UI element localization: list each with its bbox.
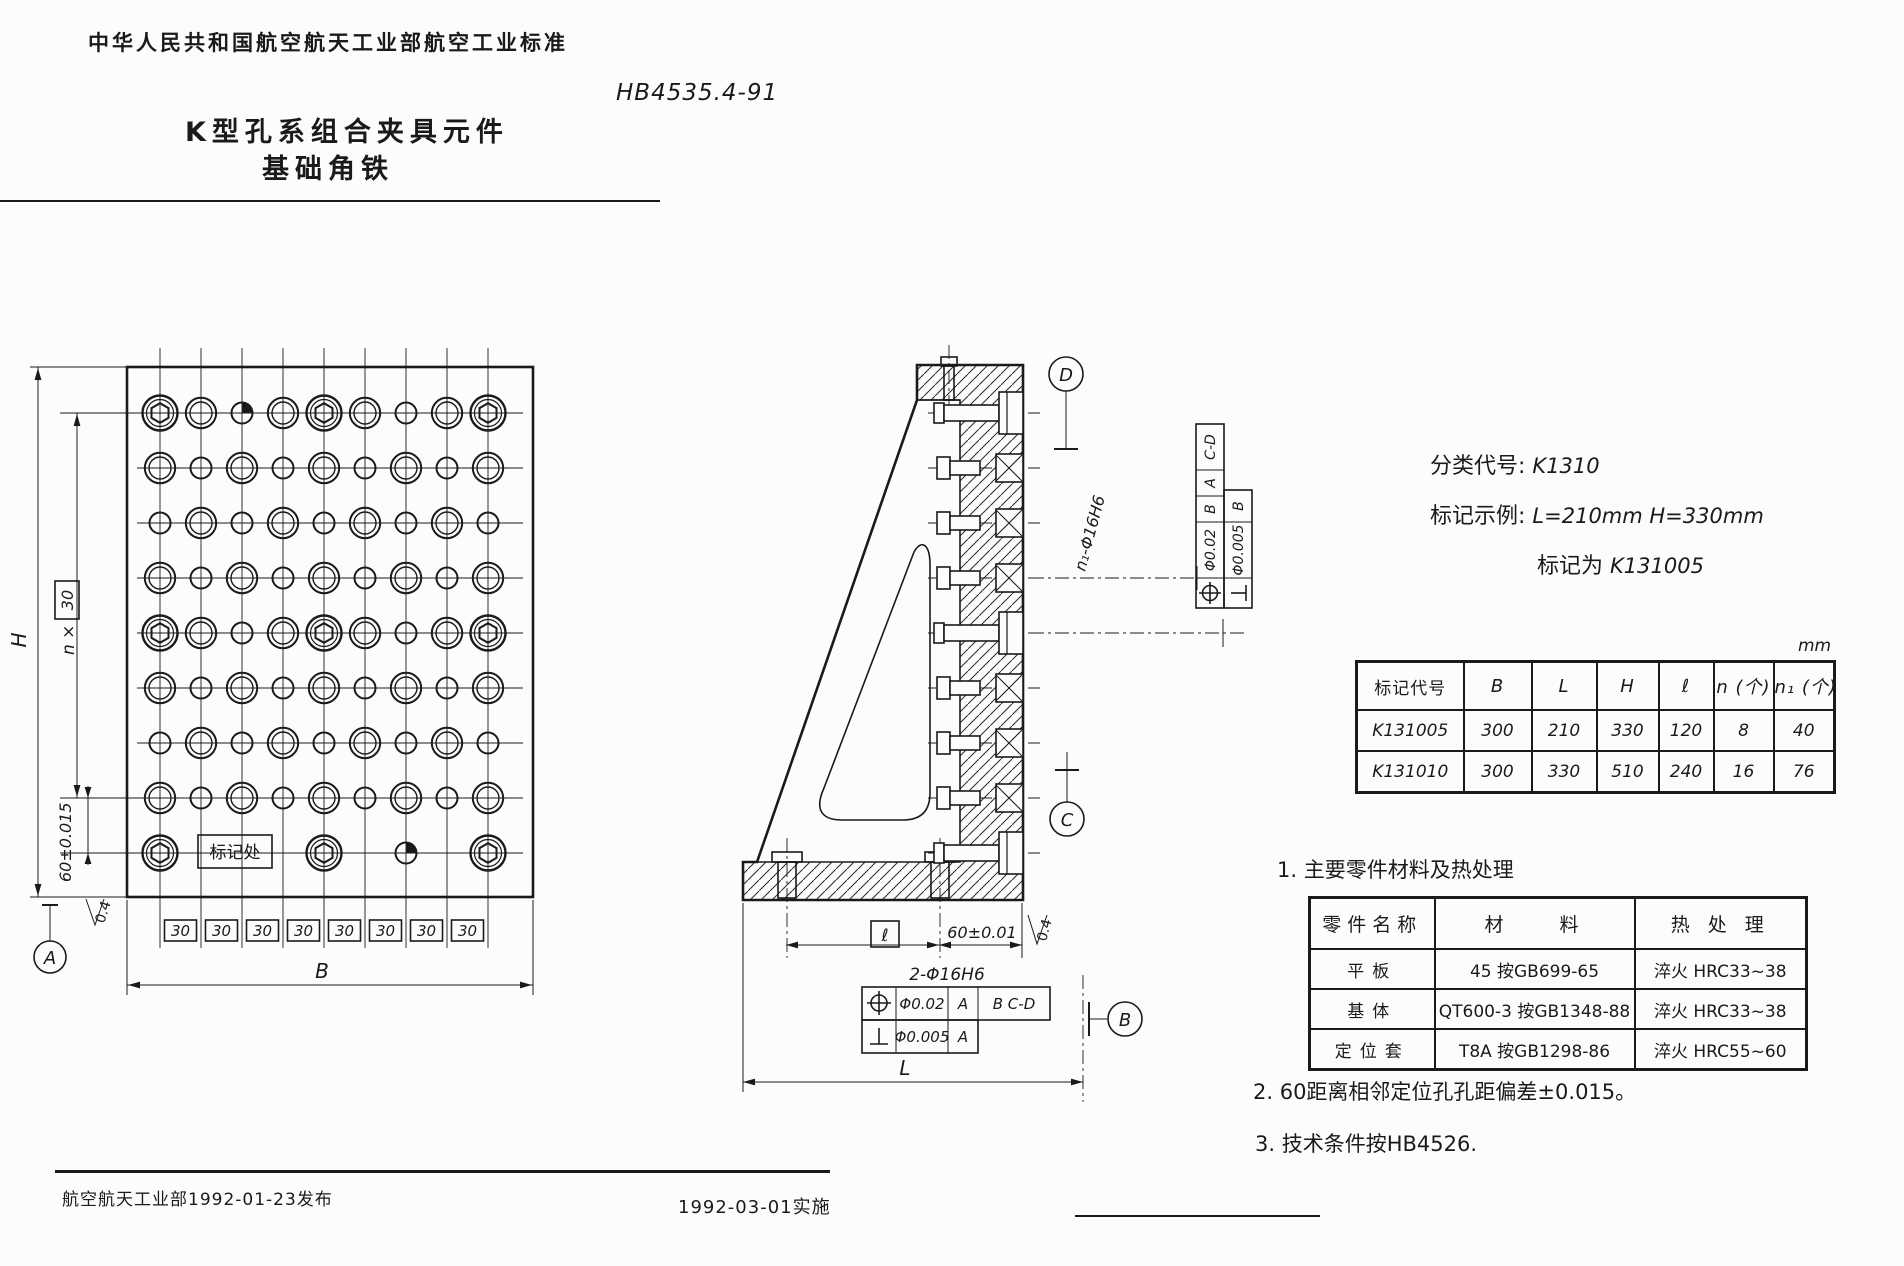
frame-cell: A xyxy=(1203,478,1219,489)
sv-datum-C-label: C xyxy=(1061,810,1074,831)
plate-outline xyxy=(127,367,533,897)
web-cutout xyxy=(820,545,930,820)
cell: 240 xyxy=(1659,751,1714,793)
bolt-head-left xyxy=(934,843,944,863)
fv-label-B: B xyxy=(315,959,329,983)
sv-roughness: 0.4 xyxy=(1028,915,1056,944)
top-bolt xyxy=(941,345,957,412)
bolt-head-left xyxy=(934,403,944,423)
sv-label-2holes: 2-Φ16H6 xyxy=(909,965,985,985)
spacing-value: 30 xyxy=(417,922,436,940)
col-header: 零件名称 xyxy=(1310,898,1435,950)
bolt-head-left xyxy=(934,623,944,643)
cell: QT600-3 按GB1348-88 xyxy=(1435,989,1635,1029)
side-view: D C n₁-Φ16H6 xyxy=(743,345,1252,1102)
sv-datum-D: D xyxy=(1049,357,1083,449)
sv-datum-D-label: D xyxy=(1059,365,1073,386)
cell: 8 xyxy=(1714,710,1774,751)
standard-org-line: 中华人民共和国航空航天工业部航空工业标准 xyxy=(88,27,568,57)
sv-datum-B-label: B xyxy=(1119,1010,1131,1031)
title-line2: 基础角铁 xyxy=(262,147,394,186)
material-table: 零件名称 材 料 热 处 理 平板 45 按GB699-65 淬火 HRC33~… xyxy=(1308,896,1808,1071)
col-header: B xyxy=(1464,662,1532,711)
dim-table-header-row: 标记代号 B L H ℓ n (个) n₁ (个) xyxy=(1357,662,1835,711)
cell: 76 xyxy=(1774,751,1835,793)
screw-head xyxy=(937,677,950,699)
fv-mark-label: 标记处 xyxy=(210,843,261,863)
sv-label-L: L xyxy=(899,1056,910,1080)
frame-cell: Φ0.005 xyxy=(895,1028,950,1046)
spacing-value: 30 xyxy=(335,922,354,940)
cell: 平板 xyxy=(1310,949,1435,989)
footer-issued: 航空航天工业部1992-01-23发布 xyxy=(62,1185,333,1210)
sv-roughness-value: 0.4 xyxy=(1034,917,1055,943)
frame-cell: C-D xyxy=(1203,434,1219,460)
title-line1: K型孔系组合夹具元件 xyxy=(185,110,509,149)
hex-bolt-head xyxy=(999,392,1023,434)
dimension-table: 标记代号 B L H ℓ n (个) n₁ (个) K131005 300 21… xyxy=(1355,660,1836,794)
material-table-row: 基体 QT600-3 按GB1348-88 淬火 HRC33~38 xyxy=(1310,989,1807,1029)
fv-roughness: 0.4 xyxy=(86,899,115,925)
fv-label-30: 30 xyxy=(58,590,77,610)
sv-label-60: 60±0.01 xyxy=(947,923,1016,942)
standard-number: HB4535.4-91 xyxy=(616,80,778,106)
screw-shaft xyxy=(950,736,980,750)
cell: 40 xyxy=(1774,710,1835,751)
col-header: H xyxy=(1597,662,1659,711)
fv-datum-A-label: A xyxy=(43,948,56,969)
screw-head xyxy=(937,567,950,589)
screw-shaft xyxy=(950,791,980,805)
bottom-right-rule xyxy=(1075,1215,1320,1217)
cell: 基体 xyxy=(1310,989,1435,1029)
cell: 330 xyxy=(1532,751,1597,793)
classification-code-value: K1310 xyxy=(1532,454,1599,478)
fv-datum-A: A xyxy=(34,905,66,973)
col-header: 热 处 理 xyxy=(1635,898,1807,950)
dim-table-row: K131010 300 330 510 240 16 76 xyxy=(1357,751,1835,793)
cell: 淬火 HRC55~60 xyxy=(1635,1029,1807,1070)
screw-head xyxy=(937,512,950,534)
screw-shaft xyxy=(950,461,980,475)
marking-label: 标记为 xyxy=(1537,554,1603,579)
col-header: ℓ xyxy=(1659,662,1714,711)
dim-table-row: K131005 300 210 330 120 8 40 xyxy=(1357,710,1835,751)
marking-example-line: 标记示例: L=210mm H=330mm xyxy=(1430,498,1764,530)
cell: 210 xyxy=(1532,710,1597,751)
cell: 330 xyxy=(1597,710,1659,751)
note-3: 3. 技术条件按HB4526. xyxy=(1255,1128,1477,1158)
frame-cell: Φ0.02 xyxy=(899,995,944,1013)
frame-cell: Φ0.005 xyxy=(1231,524,1247,575)
dim-table-unit: mm xyxy=(1798,636,1831,656)
bolt-shaft xyxy=(944,405,999,421)
standard-drawing-sheet: H n × 30 60±0.015 xyxy=(0,0,1904,1266)
spacing-value: 30 xyxy=(376,922,395,940)
classification-code-label: 分类代号: xyxy=(1430,454,1525,479)
classification-code-line: 分类代号: K1310 xyxy=(1430,448,1600,480)
sv-datum-C: C xyxy=(1050,752,1084,836)
bolt-shaft xyxy=(944,845,999,861)
hex-bolt-head xyxy=(999,832,1023,874)
screw-head xyxy=(937,787,950,809)
frame-cell: B C-D xyxy=(993,995,1036,1013)
screw-head xyxy=(937,732,950,754)
cell: 定位套 xyxy=(1310,1029,1435,1070)
spacing-value: 30 xyxy=(253,922,272,940)
footer-implemented: 1992-03-01实施 xyxy=(678,1193,831,1219)
marking-example-value: L=210mm H=330mm xyxy=(1532,504,1763,528)
cell: 45 按GB699-65 xyxy=(1435,949,1635,989)
fv-label-n: n × xyxy=(59,625,79,655)
sv-frame-bottom: 2-Φ16H6 Φ0.02 A B C-D Φ0.005 xyxy=(862,965,1050,1053)
position-symbol xyxy=(1199,582,1221,604)
col-header: n₁ (个) xyxy=(1774,662,1835,711)
frame-cell: A xyxy=(957,1028,968,1046)
spacing-value: 30 xyxy=(458,922,477,940)
screw-head xyxy=(937,457,950,479)
sv-dim-ell-60: ℓ 60±0.01 xyxy=(786,903,1022,958)
frame-cell: Φ0.02 xyxy=(1203,529,1219,571)
title-rule xyxy=(0,200,660,202)
cell: T8A 按GB1298-86 xyxy=(1435,1029,1635,1070)
fv-dim-n30: n × 30 xyxy=(55,413,80,798)
fv-dim-60: 60±0.015 xyxy=(56,786,91,882)
note-2: 2. 60距离相邻定位孔孔距偏差±0.015。 xyxy=(1253,1076,1636,1106)
cell: 淬火 HRC33~38 xyxy=(1635,989,1807,1029)
frame-cell: B xyxy=(1231,501,1247,511)
sv-datum-B: B xyxy=(1089,1002,1142,1036)
screw-shaft xyxy=(950,681,980,695)
cell: 510 xyxy=(1597,751,1659,793)
note-1: 1. 主要零件材料及热处理 xyxy=(1277,854,1514,884)
screw-shaft xyxy=(950,571,980,585)
material-table-header-row: 零件名称 材 料 热 处 理 xyxy=(1310,898,1807,950)
fv-roughness-value: 0.4 xyxy=(93,899,115,925)
cell: K131005 xyxy=(1357,710,1464,751)
fv-mark-box: 标记处 xyxy=(198,835,272,868)
fv-dim-B: B xyxy=(127,900,533,995)
cell: 300 xyxy=(1464,710,1532,751)
marking-value: K131005 xyxy=(1610,554,1704,578)
cell: 16 xyxy=(1714,751,1774,793)
fv-label-60: 60±0.015 xyxy=(56,802,75,882)
col-header: L xyxy=(1532,662,1597,711)
marking-example-label: 标记示例: xyxy=(1430,504,1525,529)
spacing-value: 30 xyxy=(212,922,231,940)
marking-line: 标记为 K131005 xyxy=(1537,548,1704,580)
sv-label-n1-holes: n₁-Φ16H6 xyxy=(1071,493,1109,573)
material-table-row: 定位套 T8A 按GB1298-86 淬火 HRC55~60 xyxy=(1310,1029,1807,1070)
cell: 300 xyxy=(1464,751,1532,793)
col-header: 标记代号 xyxy=(1357,662,1464,711)
footer-rule xyxy=(55,1170,830,1173)
cell: K131010 xyxy=(1357,751,1464,793)
bolt-shaft xyxy=(944,625,999,641)
front-view: H n × 30 60±0.015 xyxy=(7,348,533,995)
position-symbol xyxy=(867,991,891,1015)
sv-frame-side: Φ0.02 B A C-D Φ0.005 B xyxy=(1196,424,1252,608)
hex-bolt-head xyxy=(999,612,1023,654)
base-hatch xyxy=(743,862,960,900)
col-header: n (个) xyxy=(1714,662,1774,711)
frame-cell: A xyxy=(957,995,968,1013)
sv-label-ell: ℓ xyxy=(880,926,888,946)
frame-cell: B xyxy=(1203,504,1219,514)
material-table-row: 平板 45 按GB699-65 淬火 HRC33~38 xyxy=(1310,949,1807,989)
front-view-gridlines xyxy=(60,348,523,948)
spacing-value: 30 xyxy=(294,922,313,940)
perpendicularity-symbol xyxy=(1231,585,1246,601)
cell: 120 xyxy=(1659,710,1714,751)
cell: 淬火 HRC33~38 xyxy=(1635,949,1807,989)
perpendicularity-symbol xyxy=(870,1028,888,1044)
fv-label-H: H xyxy=(7,632,31,647)
col-header: 材 料 xyxy=(1435,898,1635,950)
screw-shaft xyxy=(950,516,980,530)
spacing-value: 30 xyxy=(171,922,190,940)
